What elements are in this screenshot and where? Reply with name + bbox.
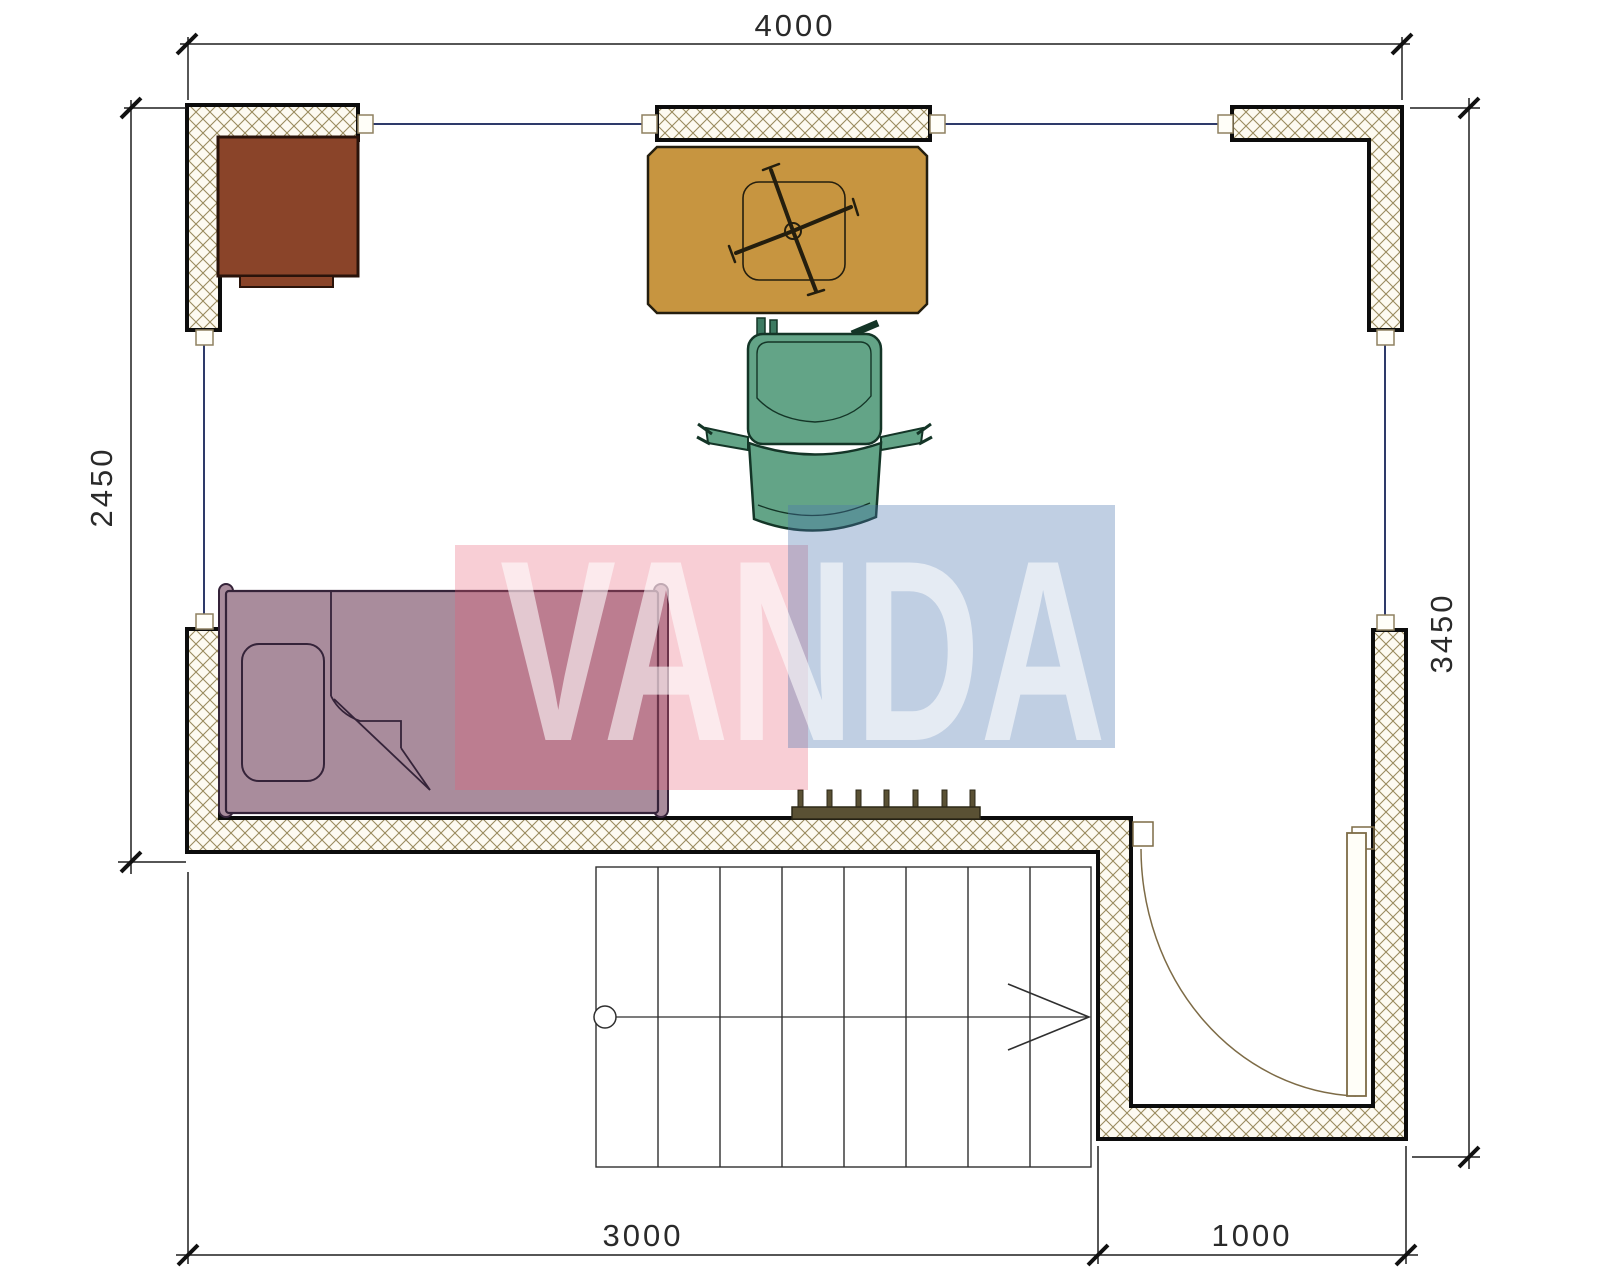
stairs-start-circle [594, 1006, 616, 1028]
window-jamb [642, 115, 657, 133]
dim-label-bottom-left: 3000 [603, 1218, 684, 1253]
dim-label-top: 4000 [755, 8, 836, 43]
desk [218, 137, 358, 287]
dim-label-bottom-right: 1000 [1212, 1218, 1293, 1253]
armchair-arm-left [706, 428, 748, 450]
window-jamb [196, 614, 213, 629]
window-jamb [930, 115, 945, 133]
watermark-text: VANDA [500, 506, 1106, 795]
desk-top [218, 137, 358, 276]
floor-plan-drawing: 4000 2450 3450 3000 1000 VANDA [0, 0, 1600, 1280]
wall-top-middle [657, 107, 930, 140]
dim-label-left: 2450 [84, 447, 119, 528]
floor-plan: 4000 2450 3450 3000 1000 VANDA [0, 0, 1600, 1280]
window-jamb [1377, 330, 1394, 345]
wall-top-right [1232, 107, 1402, 330]
work-table [648, 147, 927, 313]
staircase [594, 867, 1091, 1167]
door-jamb-marker [1133, 822, 1153, 846]
door-leaf [1347, 833, 1366, 1096]
radiator-body [792, 807, 980, 819]
window-jamb [1377, 615, 1394, 630]
window-jamb [358, 115, 373, 133]
armchair-seat [748, 334, 881, 444]
dim-label-right: 3450 [1424, 593, 1459, 674]
watermark: VANDA [455, 505, 1115, 795]
armchair-arm-right [881, 428, 923, 450]
armchair [697, 318, 932, 531]
armchair-caster [852, 323, 878, 334]
window-jamb [1218, 115, 1233, 133]
door [1133, 822, 1374, 1096]
window-jamb [196, 330, 213, 345]
desk-tray [240, 276, 333, 287]
door-swing-arc [1141, 849, 1356, 1096]
table-top [648, 147, 927, 313]
